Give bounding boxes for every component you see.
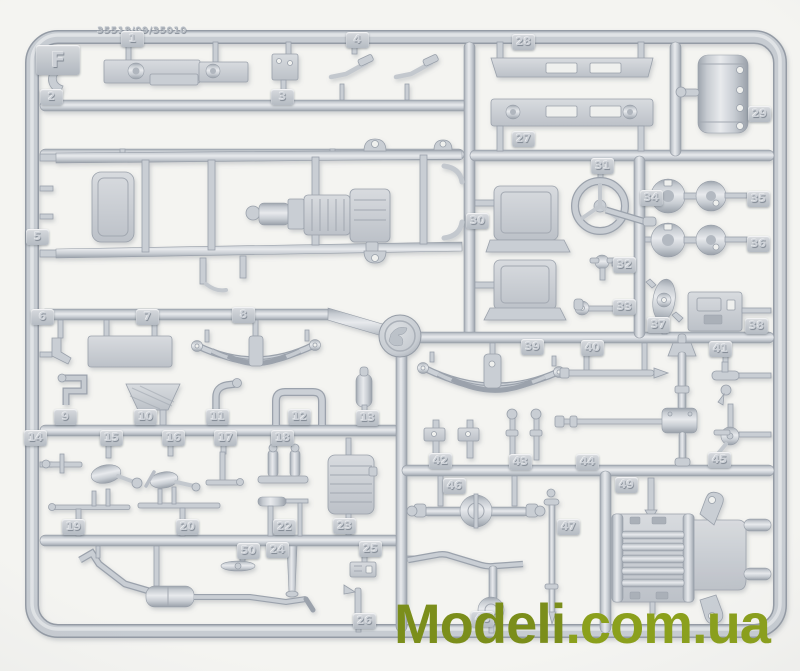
part-number-tag: 26 xyxy=(353,613,376,629)
part-number-tag: 40 xyxy=(581,340,604,356)
part-number-tag: 23 xyxy=(333,518,356,534)
parts-row-6-8 xyxy=(52,320,321,367)
part-number-tag: 42 xyxy=(429,453,452,469)
part-chassis-frame xyxy=(40,139,462,290)
part-number-tag: 37 xyxy=(647,317,670,333)
brand-medallion xyxy=(379,315,421,357)
part-number-tag: 31 xyxy=(591,158,614,174)
sprue-graphic xyxy=(0,0,800,671)
part-number-tag: 33 xyxy=(613,299,636,315)
part-number-tag: 34 xyxy=(640,190,663,206)
part-number-tag: 25 xyxy=(359,541,382,557)
part-number-tag: 43 xyxy=(509,454,532,470)
part-number-tag: 46 xyxy=(443,478,466,494)
part-number-tag: 38 xyxy=(745,318,768,334)
part-number-tag: 44 xyxy=(576,454,599,470)
part-number-tag: 29 xyxy=(748,106,771,122)
sprue-frame-and-parts xyxy=(32,35,780,633)
watermark-site-name: Modeli xyxy=(394,592,565,655)
part-number-tag: 16 xyxy=(162,430,185,446)
part-number-tag: 5 xyxy=(26,229,49,245)
part-number-tag: 14 xyxy=(24,430,47,446)
parts-top-left-group xyxy=(49,42,439,101)
part-number-tag: 7 xyxy=(136,309,159,325)
part-number-tag: 10 xyxy=(134,409,157,425)
part-number-tag: 15 xyxy=(100,430,123,446)
part-number-tag: 3 xyxy=(271,89,294,105)
part-number-tag: 11 xyxy=(206,409,229,425)
part-number-tag: 49 xyxy=(615,477,638,493)
part-number-tag: 4 xyxy=(346,32,369,48)
part-number-tag: 22 xyxy=(273,519,296,535)
part-number-tag: 36 xyxy=(747,236,770,252)
part-number-tag: 2 xyxy=(40,89,63,105)
part-number-tag: 9 xyxy=(54,409,77,425)
part-number-tag: 8 xyxy=(232,307,255,323)
watermark: Modeli.com.ua xyxy=(394,596,770,652)
part-number-tag: 47 xyxy=(557,519,580,535)
part-number-tag: 18 xyxy=(271,430,294,446)
part-number-tag: 17 xyxy=(214,430,237,446)
part-number-tag: 28 xyxy=(512,34,535,50)
part-number-tag: 35 xyxy=(747,191,770,207)
sprue-letter-label: F xyxy=(36,45,80,75)
part-number-tag: 24 xyxy=(266,542,289,558)
part-number-tag: 32 xyxy=(613,257,636,273)
part-number-tag: 1 xyxy=(121,31,144,47)
part-number-tag: 45 xyxy=(708,452,731,468)
part-number-tag: 19 xyxy=(62,519,85,535)
part-number-tag: 13 xyxy=(356,410,379,426)
part-number-tag: 20 xyxy=(176,519,199,535)
parts-row-14-18 xyxy=(42,436,377,535)
part-number-tag: 39 xyxy=(521,339,544,355)
part-number-tag: 41 xyxy=(709,341,732,357)
watermark-domain-suffix: .com.ua xyxy=(565,592,770,655)
part-number-tag: 12 xyxy=(288,409,311,425)
part-number-tag: 30 xyxy=(466,213,489,229)
parts-bottom-left-group xyxy=(49,487,377,632)
model-kit-sprue-photo: 35518/09/35010 F 12345678910111213141516… xyxy=(0,0,800,671)
part-number-tag: 50 xyxy=(237,543,260,559)
part-number-tag: 27 xyxy=(512,131,535,147)
part-number-tag: 6 xyxy=(31,309,54,325)
